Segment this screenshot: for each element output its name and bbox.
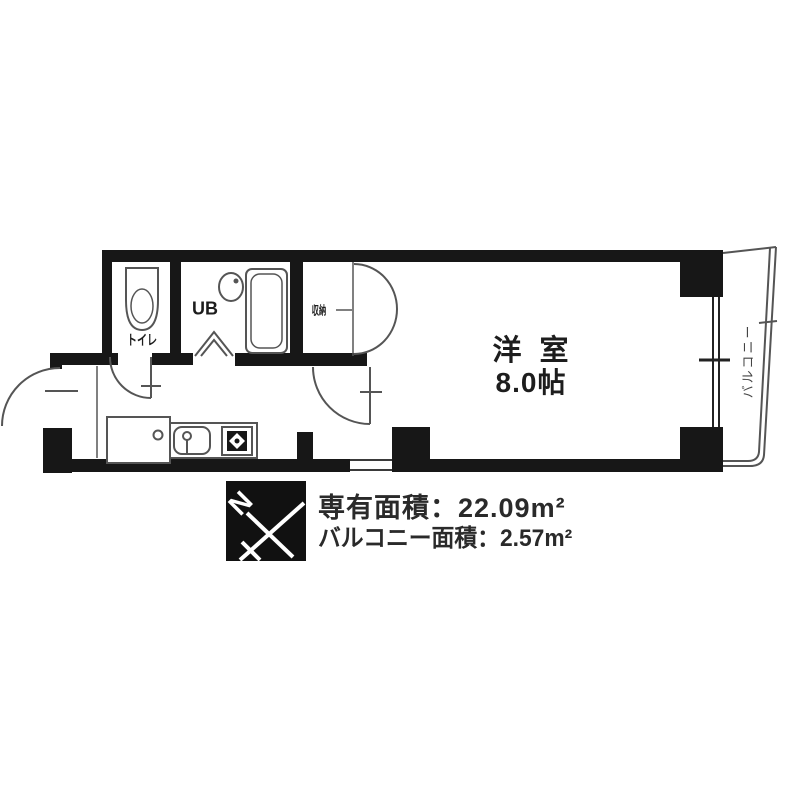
wall-right-upper bbox=[712, 250, 723, 297]
compass-graphic: N bbox=[226, 481, 306, 561]
unit-bath-label: UB bbox=[192, 299, 218, 320]
sink-faucet bbox=[183, 432, 191, 440]
bottom-wall-notch bbox=[350, 459, 392, 472]
north-compass: N bbox=[226, 481, 306, 561]
bath-sink-faucet bbox=[234, 279, 239, 284]
wall-right-lower bbox=[712, 427, 723, 472]
entrance-door-arc bbox=[2, 368, 60, 426]
wall-entry-jamb bbox=[50, 353, 62, 369]
main-room-size: 8.0帖 bbox=[496, 361, 567, 401]
balcony-label: バルコニー bbox=[738, 324, 757, 399]
bath-fold-door-outer bbox=[195, 332, 233, 356]
wall-bottom-right bbox=[392, 459, 723, 472]
wall-left-toilet bbox=[102, 250, 112, 365]
wall-ub-storage bbox=[290, 262, 303, 357]
wall-top bbox=[102, 250, 723, 262]
balcony-railing-tick bbox=[759, 321, 777, 323]
kitchen-sink bbox=[174, 427, 210, 454]
main-room-window bbox=[699, 297, 730, 427]
stove-burner-center bbox=[235, 439, 240, 444]
compass-north-letter: N bbox=[226, 485, 259, 521]
floor-plan-drawing bbox=[0, 0, 800, 800]
wall-toilet-ub bbox=[170, 262, 181, 357]
bath-sink bbox=[219, 273, 243, 301]
kitchen-gas-cock bbox=[154, 431, 163, 440]
wall-kitchen-pillar bbox=[297, 432, 313, 459]
kitchen-counter bbox=[107, 417, 170, 463]
wall-room-door-corner bbox=[392, 427, 430, 459]
floor-plan-page: 洋 室 8.0帖 トイレ UB 収納 バルコニー N 専有面積：22.09m² … bbox=[0, 0, 800, 800]
wall-under-ub bbox=[152, 353, 193, 365]
toilet-bowl bbox=[131, 289, 153, 323]
wall-bottom-left bbox=[43, 459, 350, 472]
balcony-area-text: バルコニー面積：2.57m² bbox=[318, 518, 572, 553]
storage-label: 収納 bbox=[312, 302, 326, 319]
toilet-label: トイレ bbox=[127, 330, 157, 350]
storage-door-arcs bbox=[354, 264, 397, 354]
balcony-top-line bbox=[723, 247, 776, 253]
room-door-arc bbox=[313, 367, 370, 424]
wall-under-bath-storage bbox=[235, 353, 367, 366]
bathtub-inner bbox=[251, 274, 282, 348]
